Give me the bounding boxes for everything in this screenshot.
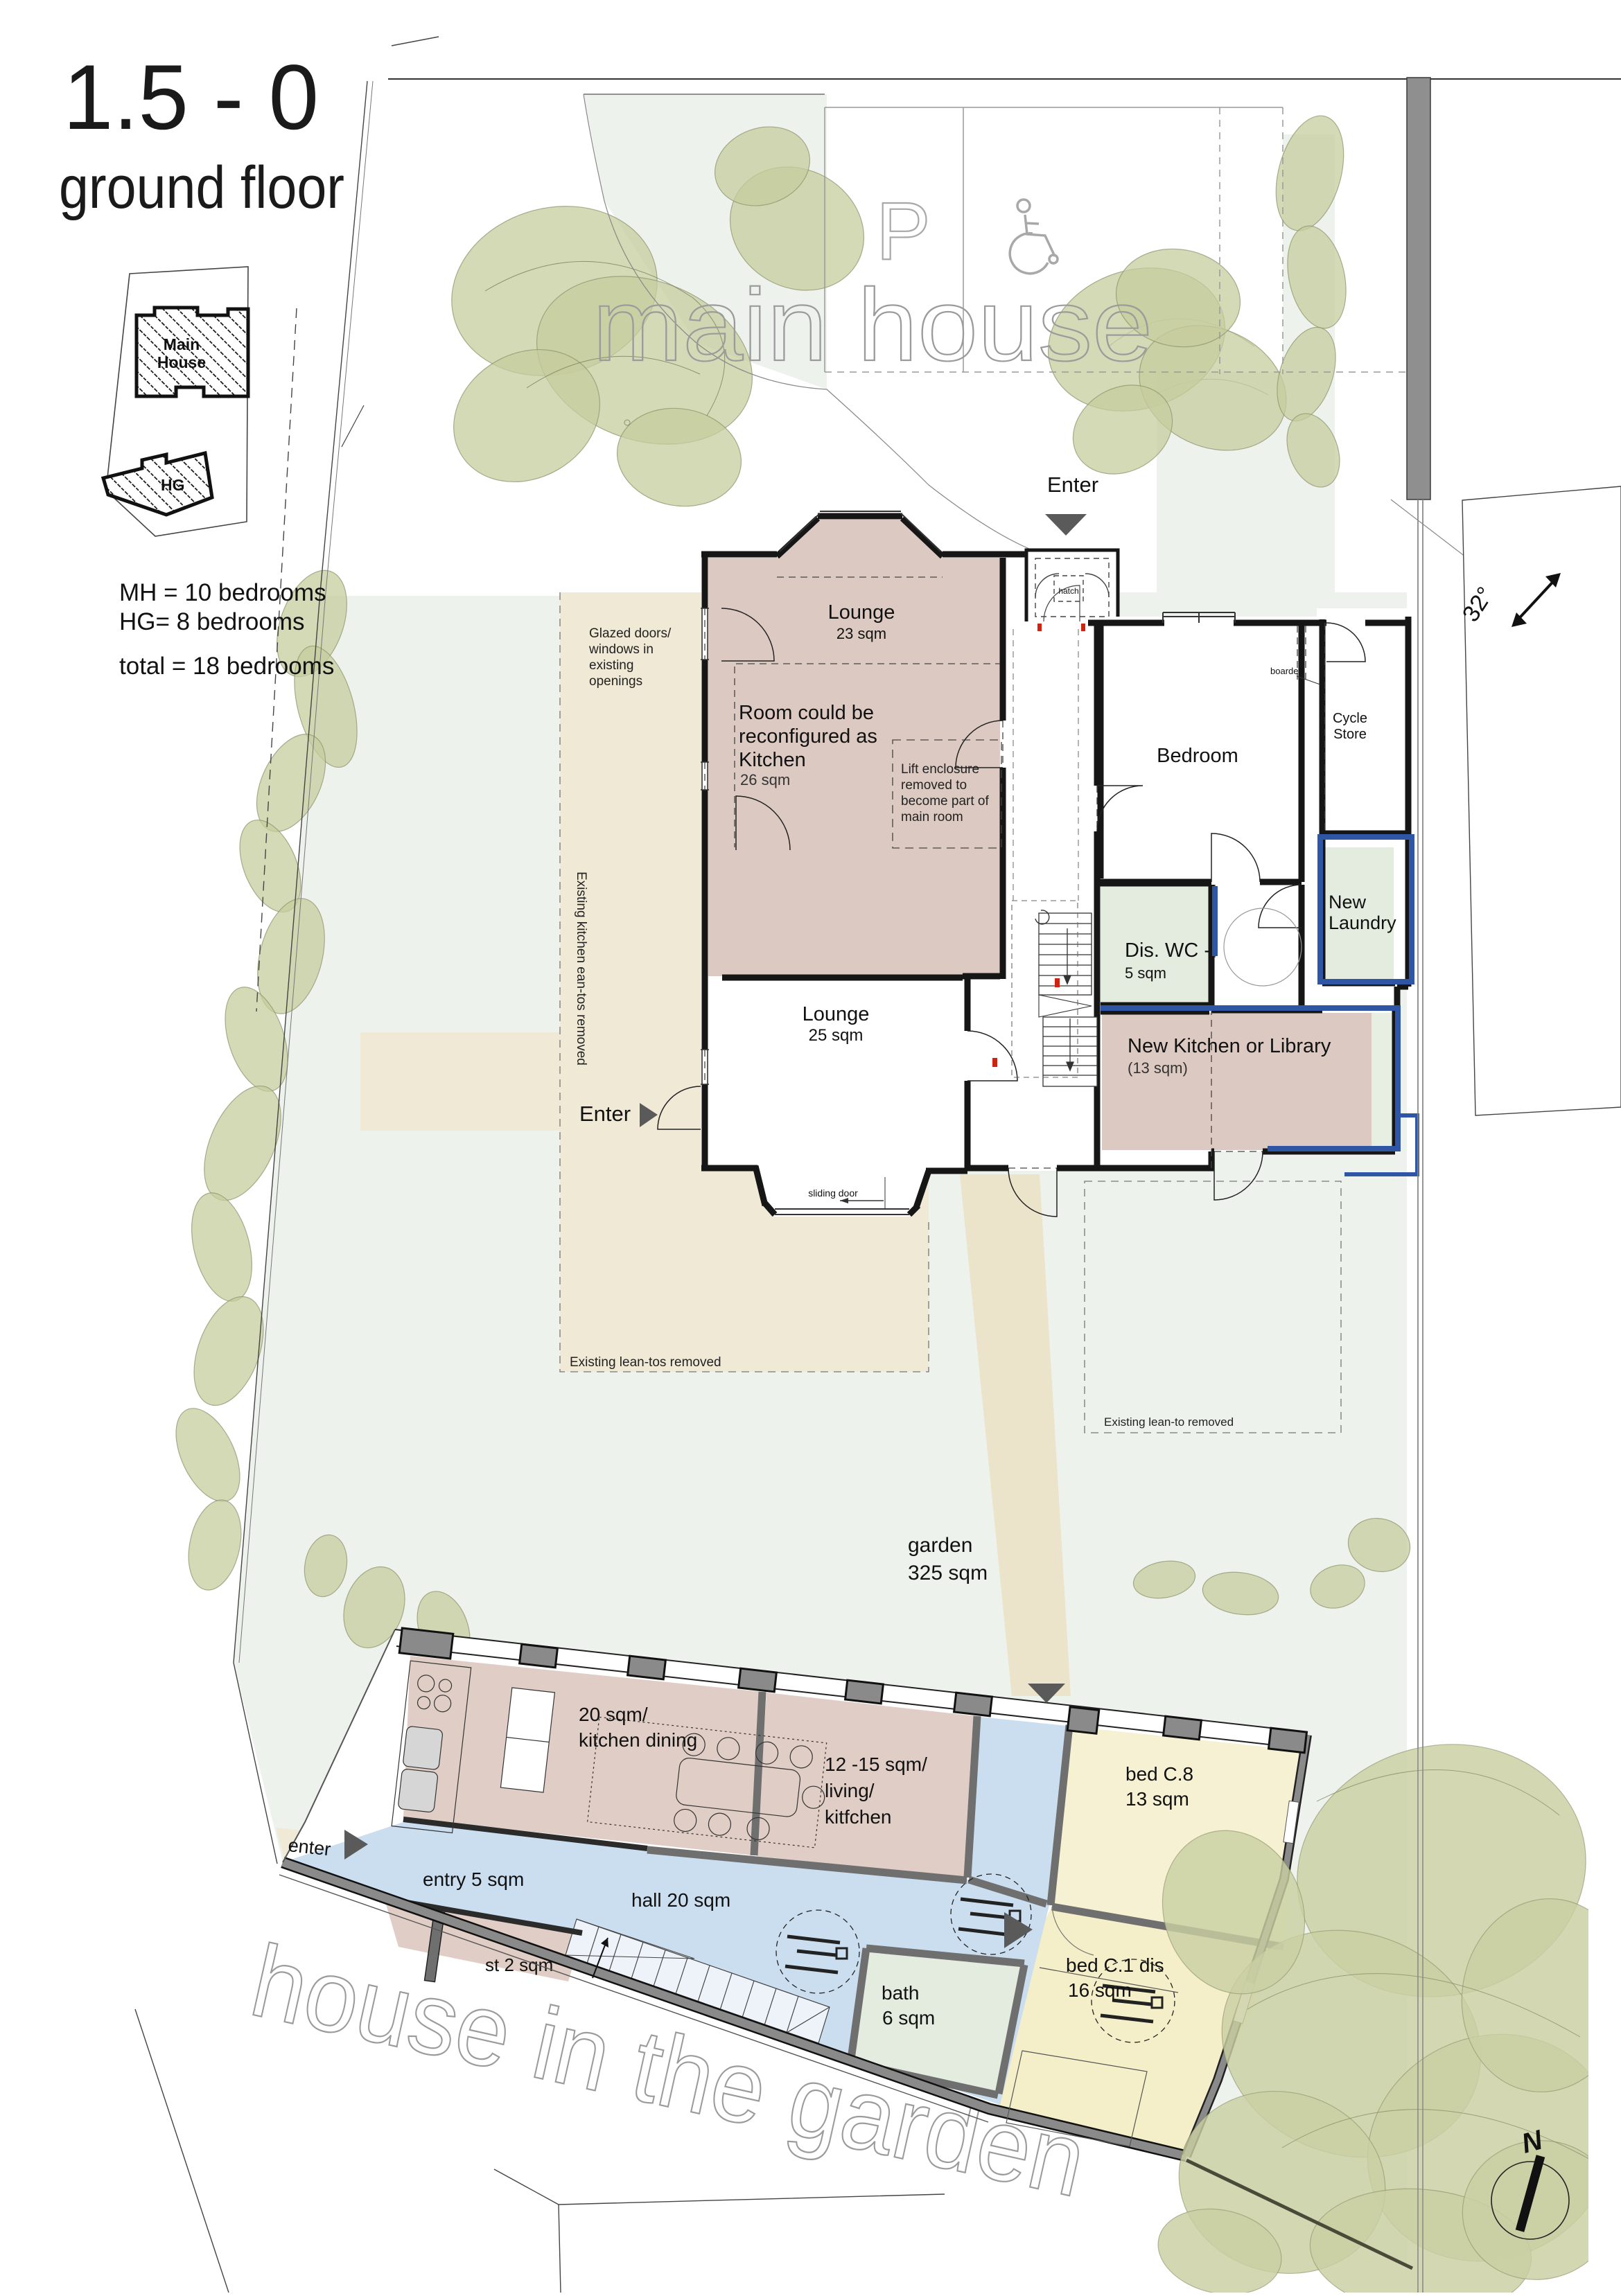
svg-text:New: New [1329,892,1367,912]
svg-text:removed to: removed to [901,778,967,793]
svg-text:main room: main room [901,810,963,824]
svg-text:25 sqm: 25 sqm [809,1026,864,1045]
svg-text:Store: Store [1333,727,1367,742]
svg-text:26 sqm: 26 sqm [740,771,790,788]
svg-text:Lift enclosure: Lift enclosure [901,762,979,777]
svg-text:Lounge: Lounge [828,601,895,624]
svg-text:bath: bath [882,1982,920,2004]
svg-text:Existing lean-to removed: Existing lean-to removed [1104,1415,1234,1429]
svg-text:House: House [157,353,206,371]
svg-text:boarded: boarded [1270,666,1304,676]
svg-text:Dis. WC -: Dis. WC - [1125,939,1211,962]
svg-text:Glazed doors/: Glazed doors/ [589,626,672,641]
svg-text:Enter: Enter [1047,473,1098,497]
svg-text:bed C.8: bed C.8 [1125,1763,1193,1785]
svg-text:reconfigured as: reconfigured as [739,725,877,748]
svg-text:Laundry: Laundry [1329,912,1396,933]
svg-text:windows in: windows in [588,642,654,657]
svg-text:12 -15 sqm/: 12 -15 sqm/ [825,1754,927,1775]
svg-text:living/: living/ [825,1780,875,1801]
svg-text:sliding door: sliding door [808,1187,858,1199]
svg-text:Bedroom: Bedroom [1157,745,1238,767]
svg-text:kitchen dining: kitchen dining [579,1729,697,1751]
svg-text:enter: enter [287,1835,331,1860]
svg-text:total = 18 bedrooms: total = 18 bedrooms [119,653,334,680]
svg-text:1.5 - 0: 1.5 - 0 [63,46,319,149]
svg-text:hatch: hatch [1058,586,1078,596]
svg-text:P: P [876,186,931,277]
svg-text:main house: main house [593,268,1153,382]
svg-text:bed C.1 dis: bed C.1 dis [1066,1954,1164,1976]
svg-text:325 sqm: 325 sqm [908,1562,988,1584]
svg-text:HG= 8 bedrooms: HG= 8 bedrooms [119,608,305,635]
svg-text:Room could be: Room could be [739,702,874,724]
svg-text:become part of: become part of [901,794,989,809]
svg-text:20 sqm/: 20 sqm/ [579,1704,648,1725]
svg-text:Existing kitchen ean-tos rem: Existing kitchen ean-tos removed [574,872,588,1066]
svg-text:Kitchen: Kitchen [739,749,806,771]
svg-text:hall 20 sqm: hall 20 sqm [631,1889,730,1911]
svg-text:Main: Main [164,335,200,353]
svg-text:New Kitchen or Library: New Kitchen or Library [1128,1035,1331,1057]
svg-text:existing: existing [589,658,633,673]
svg-text:16 sqm: 16 sqm [1068,1979,1132,2001]
svg-text:entry 5 sqm: entry 5 sqm [423,1869,524,1890]
svg-text:HG: HG [161,476,185,494]
svg-text:Existing lean-tos removed: Existing lean-tos removed [570,1355,721,1370]
svg-text:openings: openings [589,674,642,689]
svg-text:kitfchen: kitfchen [825,1806,892,1828]
svg-text:st 2 sqm: st 2 sqm [485,1954,553,1975]
svg-text:Enter: Enter [579,1102,631,1126]
svg-text:garden: garden [908,1534,972,1557]
svg-text:23 sqm: 23 sqm [836,625,886,642]
svg-text:ground floor: ground floor [59,154,344,221]
svg-text:(13 sqm): (13 sqm) [1128,1059,1188,1077]
svg-text:6 sqm: 6 sqm [882,2007,935,2029]
svg-text:5 sqm: 5 sqm [1125,964,1166,982]
svg-text:Cycle: Cycle [1333,711,1367,726]
svg-text:13 sqm: 13 sqm [1125,1788,1189,1810]
svg-text:MH = 10 bedrooms: MH = 10 bedrooms [119,579,326,606]
svg-text:Lounge: Lounge [803,1003,870,1025]
